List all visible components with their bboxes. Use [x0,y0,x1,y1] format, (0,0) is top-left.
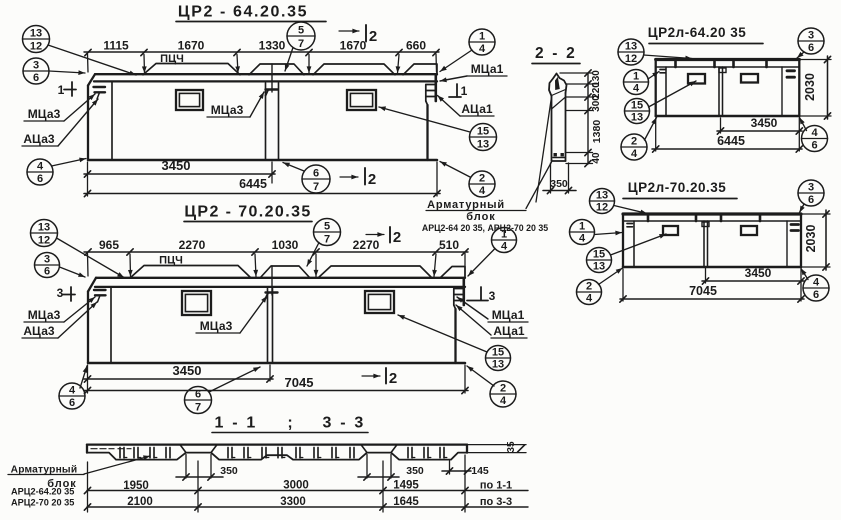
svg-text:АЦа3: АЦа3 [23,324,55,338]
svg-text:3: 3 [808,182,814,194]
svg-text:12: 12 [625,53,637,65]
svg-text:2270: 2270 [353,238,380,252]
svg-text:2: 2 [479,173,485,185]
svg-text:3450: 3450 [173,363,202,378]
svg-text:350: 350 [406,465,424,477]
svg-text:МЦа1: МЦа1 [492,308,525,322]
svg-text:350: 350 [220,465,238,477]
svg-text:Арматурный: Арматурный [427,199,505,211]
svg-text:13: 13 [593,260,605,272]
svg-text:3: 3 [33,60,39,72]
svg-text:15: 15 [593,249,605,261]
svg-text:блок: блок [466,211,496,223]
svg-text:12: 12 [596,201,608,213]
svg-text:7045: 7045 [689,284,717,298]
svg-text:1030: 1030 [272,238,299,252]
svg-text:7: 7 [298,38,304,50]
svg-text:145: 145 [471,465,489,477]
svg-text:АЦа1: АЦа1 [461,102,493,116]
svg-text:МЦа3: МЦа3 [211,103,244,117]
svg-text:МЦа1: МЦа1 [471,62,504,76]
svg-text:35: 35 [506,441,517,453]
svg-text:1495: 1495 [393,480,419,492]
svg-text:2: 2 [369,28,377,45]
svg-text:МЦа3: МЦа3 [28,107,61,121]
svg-text:4: 4 [579,232,586,244]
svg-text:6: 6 [37,173,43,185]
svg-text:7: 7 [195,401,201,413]
svg-text:3450: 3450 [751,116,778,130]
svg-text:13: 13 [625,41,637,53]
svg-text:6: 6 [195,389,201,401]
svg-text:13: 13 [492,358,504,370]
svg-text:6: 6 [808,42,814,54]
svg-text:АЦа3: АЦа3 [23,132,55,146]
svg-text:АРЦ2-64 20 35, АРЦ2-70 20 35: АРЦ2-64 20 35, АРЦ2-70 20 35 [422,223,548,233]
svg-text:6: 6 [313,168,319,180]
svg-text:300: 300 [591,95,602,112]
svg-text:по 1-1: по 1-1 [480,480,512,492]
svg-text:3 - 3: 3 - 3 [322,415,365,432]
svg-text:2 - 2: 2 - 2 [535,45,577,62]
svg-text:15: 15 [477,126,489,138]
svg-text:по 3-3: по 3-3 [480,496,512,508]
svg-text:2: 2 [631,136,637,148]
svg-text:660: 660 [406,39,426,53]
svg-text:6: 6 [33,72,39,84]
svg-text:6: 6 [811,139,817,151]
svg-text:4: 4 [633,82,640,94]
svg-text:3: 3 [44,254,50,266]
svg-text:1380: 1380 [591,120,603,144]
svg-text:5: 5 [324,221,330,233]
svg-text:3000: 3000 [283,480,309,492]
svg-text:3: 3 [489,289,496,303]
svg-text:4: 4 [813,277,820,289]
svg-text:2030: 2030 [803,73,817,101]
svg-text:4: 4 [69,385,76,397]
svg-text:3: 3 [808,30,814,42]
svg-text:3300: 3300 [280,496,306,508]
svg-text:1: 1 [461,84,468,98]
svg-text:1: 1 [579,221,585,233]
svg-text:12: 12 [38,234,50,246]
svg-text:ЦР2л-64.20 35: ЦР2л-64.20 35 [648,25,747,40]
svg-text:ЦР2л-70.20.35: ЦР2л-70.20.35 [628,180,727,195]
svg-text:6445: 6445 [717,134,745,148]
svg-text:510: 510 [439,238,459,252]
svg-text:6: 6 [44,265,50,277]
svg-text:4: 4 [500,395,507,407]
svg-text:1 - 1: 1 - 1 [214,415,257,432]
svg-text:;: ; [287,415,292,432]
svg-text:4: 4 [501,240,508,252]
svg-text:ЦР2 - 70.20.35: ЦР2 - 70.20.35 [184,204,311,221]
svg-text:1670: 1670 [178,39,205,53]
svg-text:4: 4 [811,127,818,139]
svg-text:7045: 7045 [285,375,314,390]
svg-text:2: 2 [368,171,376,188]
svg-text:МЦа3: МЦа3 [200,319,233,333]
svg-text:15: 15 [492,347,504,359]
svg-text:4: 4 [37,161,44,173]
svg-text:1115: 1115 [103,39,129,53]
svg-text:1: 1 [633,71,639,83]
svg-text:4: 4 [479,185,486,197]
svg-text:МЦа3: МЦа3 [28,308,61,322]
svg-text:7: 7 [313,181,319,193]
svg-text:40: 40 [591,152,602,164]
svg-text:6445: 6445 [239,177,267,191]
svg-text:АРЦ2-64.20 35: АРЦ2-64.20 35 [11,487,74,497]
svg-text:13: 13 [30,28,42,40]
svg-text:2: 2 [389,370,397,387]
svg-text:5: 5 [298,25,304,37]
svg-text:1645: 1645 [393,496,419,508]
svg-text:3450: 3450 [745,266,772,280]
svg-text:АРЦ2-70 20 35: АРЦ2-70 20 35 [11,498,74,508]
svg-text:6: 6 [69,397,75,409]
svg-text:2030: 2030 [804,225,818,253]
svg-text:7: 7 [324,233,330,245]
svg-text:3450: 3450 [162,158,191,173]
svg-text:2270: 2270 [179,238,206,252]
svg-text:2: 2 [393,229,401,246]
svg-text:ПЦЧ: ПЦЧ [159,255,183,267]
svg-text:4: 4 [479,43,486,55]
svg-text:АЦа1: АЦа1 [493,324,525,338]
svg-text:1950: 1950 [123,480,149,492]
svg-text:350: 350 [550,178,568,190]
svg-text:13: 13 [477,138,489,150]
svg-text:1670: 1670 [340,39,367,53]
svg-text:1: 1 [479,31,485,43]
svg-text:965: 965 [99,238,119,252]
svg-text:13: 13 [631,111,643,123]
svg-text:13: 13 [596,190,608,202]
svg-text:4: 4 [586,292,593,304]
svg-text:ПЦЧ: ПЦЧ [160,53,184,65]
svg-text:6: 6 [808,194,814,206]
svg-text:4: 4 [631,148,638,160]
svg-text:2100: 2100 [127,496,153,508]
svg-text:13: 13 [38,222,50,234]
svg-text:12: 12 [30,40,42,52]
svg-text:1330: 1330 [259,39,286,53]
svg-text:2: 2 [586,281,592,293]
svg-text:6: 6 [813,289,819,301]
svg-text:15: 15 [631,100,643,112]
svg-text:ЦР2 - 64.20.35: ЦР2 - 64.20.35 [178,4,308,21]
svg-text:2: 2 [500,383,506,395]
svg-text:3: 3 [57,286,64,300]
